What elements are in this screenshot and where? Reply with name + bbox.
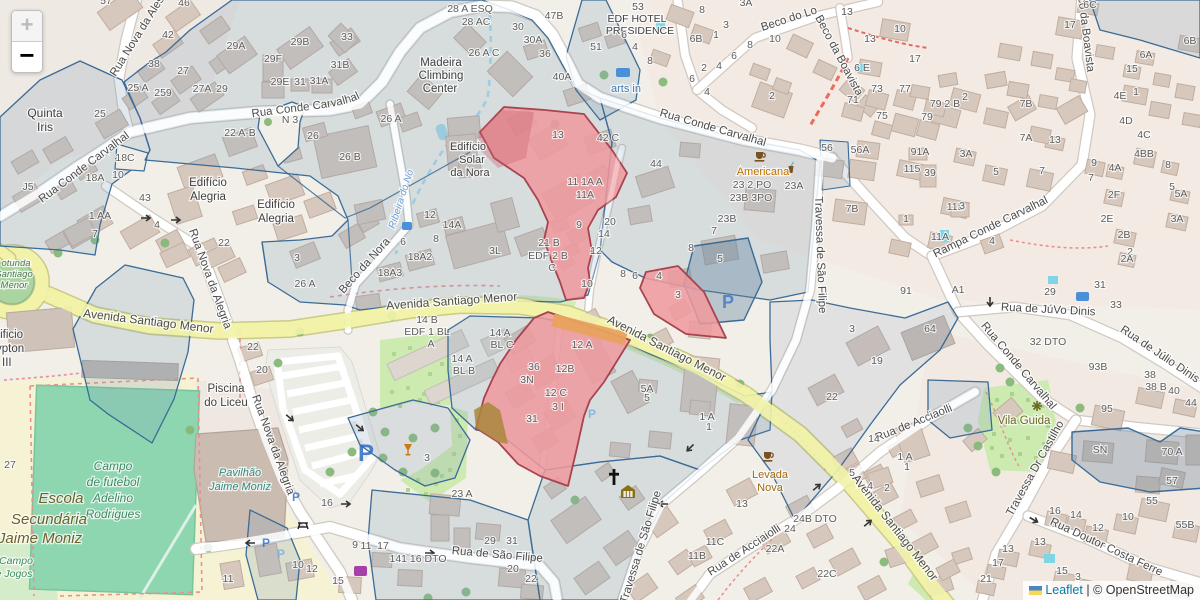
svg-text:6: 6 (632, 270, 638, 282)
svg-text:7B: 7B (1020, 98, 1033, 110)
svg-text:Campo: Campo (94, 459, 133, 473)
svg-text:EDF 2 B: EDF 2 B (528, 250, 568, 262)
svg-text:Secundária: Secundária (11, 511, 87, 528)
svg-text:P: P (358, 440, 374, 467)
svg-text:Climbing: Climbing (419, 70, 464, 82)
svg-text:1: 1 (1133, 86, 1139, 98)
svg-text:Alegria: Alegria (190, 191, 226, 203)
svg-text:32 DTO: 32 DTO (1030, 336, 1067, 348)
svg-text:Center: Center (423, 83, 458, 95)
svg-text:8: 8 (699, 4, 705, 16)
svg-text:17: 17 (992, 557, 1004, 569)
svg-text:15: 15 (1056, 565, 1068, 577)
svg-text:29: 29 (216, 83, 228, 95)
svg-text:23A: 23A (785, 180, 804, 192)
svg-text:13: 13 (1002, 543, 1014, 555)
svg-text:14 A: 14 A (451, 353, 472, 365)
svg-text:46: 46 (178, 0, 190, 9)
svg-text:24B DTO: 24B DTO (793, 513, 837, 525)
svg-text:15: 15 (1126, 63, 1138, 75)
svg-text:12: 12 (1092, 522, 1104, 534)
svg-text:1: 1 (904, 461, 910, 473)
svg-text:4A: 4A (1109, 162, 1122, 174)
svg-text:6C: 6C (1083, 0, 1097, 11)
svg-text:31B: 31B (331, 59, 350, 71)
svg-text:14: 14 (868, 433, 880, 445)
svg-text:N 3: N 3 (282, 114, 299, 126)
svg-text:29A: 29A (227, 40, 246, 52)
svg-text:Edifício: Edifício (450, 141, 486, 153)
svg-text:6: 6 (731, 50, 737, 62)
svg-text:2E: 2E (1101, 213, 1114, 225)
svg-text:10: 10 (894, 23, 906, 35)
svg-text:22 A-B: 22 A-B (224, 127, 256, 139)
svg-text:13: 13 (841, 6, 853, 18)
svg-text:2: 2 (769, 90, 775, 102)
svg-text:38: 38 (1144, 369, 1156, 381)
svg-text:13: 13 (552, 129, 564, 141)
svg-text:22: 22 (826, 391, 838, 403)
svg-text:4: 4 (716, 60, 722, 72)
svg-text:3: 3 (294, 252, 300, 264)
svg-text:93B: 93B (1089, 361, 1108, 373)
svg-text:36: 36 (528, 361, 540, 373)
svg-text:16: 16 (1049, 505, 1061, 517)
svg-text:12: 12 (424, 209, 436, 221)
svg-text:Jaime Moniz: Jaime Moniz (208, 481, 271, 493)
svg-text:12 C: 12 C (545, 387, 568, 399)
svg-text:A1: A1 (952, 284, 965, 296)
svg-text:29: 29 (484, 535, 496, 547)
svg-text:26 A C: 26 A C (469, 47, 500, 59)
svg-text:Campo: Campo (0, 555, 33, 567)
svg-text:Rodrigues: Rodrigues (86, 507, 141, 521)
svg-text:11B: 11B (688, 550, 706, 562)
svg-text:A: A (427, 338, 434, 350)
svg-text:III: III (2, 357, 12, 369)
svg-text:43: 43 (139, 192, 151, 204)
svg-text:2A: 2A (1121, 253, 1134, 265)
svg-text:3A: 3A (1171, 213, 1184, 225)
svg-text:7A: 7A (1020, 132, 1033, 144)
svg-text:Solar: Solar (459, 154, 485, 166)
svg-text:Edifício: Edifício (257, 199, 295, 211)
svg-text:5: 5 (717, 253, 723, 265)
svg-text:4: 4 (989, 235, 995, 247)
svg-text:3: 3 (959, 200, 965, 212)
svg-text:23B 3PO: 23B 3PO (730, 192, 773, 204)
svg-text:8: 8 (1165, 159, 1171, 171)
svg-text:Quinta: Quinta (27, 106, 63, 120)
svg-text:79 2 B: 79 2 B (930, 98, 960, 110)
svg-text:11A: 11A (931, 231, 949, 243)
svg-text:3: 3 (849, 323, 855, 335)
svg-text:BL C: BL C (491, 339, 514, 351)
svg-text:40A: 40A (553, 71, 572, 83)
svg-text:10: 10 (1122, 511, 1134, 523)
svg-text:22C: 22C (817, 568, 837, 580)
svg-text:31: 31 (294, 76, 306, 88)
svg-text:Pavilhão: Pavilhão (219, 467, 261, 479)
svg-text:77: 77 (899, 83, 911, 95)
svg-text:4: 4 (867, 480, 873, 492)
svg-text:39: 39 (924, 167, 936, 179)
svg-text:23 2 PO: 23 2 PO (733, 179, 772, 191)
svg-text:Edificio: Edificio (0, 329, 23, 341)
svg-text:Levada: Levada (752, 469, 789, 481)
svg-text:31A: 31A (310, 75, 329, 87)
svg-text:Americana: Americana (737, 166, 790, 178)
svg-text:14: 14 (598, 228, 610, 240)
svg-text:20: 20 (604, 216, 616, 228)
svg-text:3: 3 (723, 19, 729, 31)
svg-text:71: 71 (847, 94, 859, 106)
svg-text:18C: 18C (115, 152, 135, 164)
svg-text:28 AC: 28 AC (462, 16, 491, 28)
svg-text:2: 2 (701, 62, 707, 74)
svg-text:47B: 47B (545, 10, 564, 22)
svg-text:Menor: Menor (1, 280, 29, 291)
svg-text:4BB: 4BB (1134, 148, 1154, 160)
svg-text:7B: 7B (846, 203, 859, 215)
svg-text:27A: 27A (193, 83, 212, 95)
svg-text:Vila Guida: Vila Guida (998, 415, 1051, 427)
svg-text:PRESIDENCE: PRESIDENCE (606, 25, 674, 37)
svg-text:9: 9 (576, 219, 582, 231)
svg-text:14: 14 (1070, 509, 1082, 521)
svg-text:18A: 18A (86, 172, 105, 184)
svg-text:14A: 14A (443, 219, 462, 231)
svg-text:P: P (588, 407, 596, 421)
svg-text:29F: 29F (264, 53, 282, 65)
svg-text:4E: 4E (1114, 90, 1127, 102)
svg-text:33: 33 (1110, 299, 1122, 311)
svg-text:25 A: 25 A (127, 82, 148, 94)
svg-text:15: 15 (332, 575, 344, 587)
svg-text:25: 25 (94, 108, 106, 120)
svg-text:P: P (262, 536, 270, 550)
svg-text:22: 22 (525, 573, 537, 585)
svg-text:70 A: 70 A (1161, 446, 1182, 458)
svg-text:53: 53 (632, 1, 644, 13)
svg-text:95: 95 (1101, 403, 1113, 415)
svg-text:17: 17 (377, 540, 389, 552)
svg-text:29E: 29E (271, 76, 290, 88)
svg-text:1 AA: 1 AA (89, 210, 111, 222)
svg-text:10: 10 (112, 169, 124, 181)
svg-text:Santiago: Santiago (0, 269, 33, 280)
svg-text:17: 17 (1064, 19, 1076, 31)
svg-text:13: 13 (1049, 134, 1061, 146)
svg-text:6B: 6B (1184, 35, 1197, 47)
svg-text:7: 7 (1039, 165, 1045, 177)
svg-text:ypton: ypton (0, 343, 24, 355)
svg-text:33: 33 (341, 31, 353, 43)
svg-text:da Nora: da Nora (450, 167, 490, 179)
svg-text:11: 11 (223, 573, 234, 585)
svg-text:12B: 12B (556, 363, 575, 375)
svg-text:SN: SN (1093, 444, 1108, 456)
svg-text:1: 1 (903, 213, 909, 225)
svg-text:42: 42 (162, 29, 174, 41)
svg-text:40: 40 (1168, 385, 1180, 397)
svg-text:11 1A A: 11 1A A (567, 176, 602, 188)
svg-text:Edifício: Edifício (189, 177, 227, 189)
svg-text:8: 8 (620, 268, 626, 280)
svg-text:79: 79 (921, 111, 933, 123)
svg-text:BL B: BL B (453, 365, 475, 377)
svg-text:4: 4 (632, 41, 638, 53)
svg-text:26 A: 26 A (380, 113, 401, 125)
svg-text:9: 9 (1091, 157, 1097, 169)
svg-text:31: 31 (526, 413, 538, 425)
svg-text:56A: 56A (851, 144, 870, 156)
svg-text:e Jogos: e Jogos (0, 568, 33, 580)
svg-text:31: 31 (1094, 279, 1106, 291)
svg-text:3N: 3N (520, 374, 533, 386)
svg-text:57: 57 (1166, 475, 1178, 487)
svg-text:44: 44 (650, 158, 662, 170)
svg-text:51: 51 (590, 41, 602, 53)
svg-text:5: 5 (849, 467, 855, 479)
svg-text:P: P (277, 547, 285, 561)
svg-text:11C: 11C (706, 536, 725, 548)
svg-text:20: 20 (507, 563, 519, 575)
svg-text:2F: 2F (1108, 189, 1120, 201)
svg-text:23 A: 23 A (451, 488, 472, 500)
svg-text:27: 27 (4, 459, 16, 471)
svg-text:do Liceu: do Liceu (204, 397, 247, 409)
svg-text:arts in: arts in (611, 83, 641, 95)
svg-text:Piscina: Piscina (207, 383, 245, 395)
svg-text:8: 8 (647, 55, 653, 67)
svg-text:6B: 6B (690, 33, 703, 45)
svg-text:6: 6 (689, 73, 695, 85)
svg-text:7: 7 (711, 225, 717, 237)
svg-text:29: 29 (1044, 286, 1056, 298)
svg-text:9: 9 (352, 539, 358, 551)
svg-text:Nova: Nova (757, 482, 784, 494)
svg-text:14 B: 14 B (416, 314, 438, 326)
svg-text:4: 4 (704, 86, 710, 98)
svg-text:20: 20 (256, 364, 268, 376)
svg-text:6: 6 (621, 29, 627, 41)
svg-text:13: 13 (864, 33, 876, 45)
svg-text:2: 2 (884, 482, 890, 494)
svg-text:22: 22 (218, 237, 230, 249)
svg-text:64: 64 (924, 323, 936, 335)
svg-text:24: 24 (784, 523, 796, 535)
svg-text:3A: 3A (960, 148, 973, 160)
svg-text:1: 1 (706, 421, 712, 433)
svg-text:30: 30 (512, 21, 524, 33)
svg-text:8: 8 (433, 233, 439, 245)
svg-text:75: 75 (876, 110, 888, 122)
svg-text:11: 11 (361, 540, 372, 552)
svg-text:otunda: otunda (1, 258, 30, 269)
svg-text:de futebol: de futebol (87, 475, 140, 489)
svg-text:4C: 4C (1137, 129, 1151, 141)
svg-text:P: P (722, 292, 734, 312)
svg-text:23B: 23B (718, 213, 737, 225)
svg-text:3A: 3A (740, 0, 753, 9)
svg-text:2B: 2B (1118, 229, 1131, 241)
svg-text:10: 10 (292, 559, 304, 571)
svg-text:1: 1 (713, 29, 719, 41)
svg-text:Escola: Escola (38, 490, 83, 507)
svg-text:17: 17 (909, 53, 921, 65)
svg-text:73: 73 (871, 83, 883, 95)
svg-text:29B: 29B (291, 36, 310, 48)
svg-text:C: C (548, 262, 556, 274)
svg-text:5A: 5A (1175, 188, 1188, 200)
svg-text:J5: J5 (22, 181, 33, 193)
svg-text:3: 3 (675, 289, 681, 301)
svg-text:12: 12 (306, 563, 318, 575)
svg-text:91: 91 (900, 285, 912, 297)
svg-text:14 A: 14 A (489, 327, 510, 339)
svg-text:5: 5 (644, 392, 650, 404)
svg-text:91A: 91A (911, 146, 930, 158)
svg-text:56: 56 (821, 142, 833, 154)
svg-text:27: 27 (177, 65, 189, 77)
svg-text:7: 7 (1088, 172, 1094, 184)
svg-text:Iris: Iris (37, 120, 53, 134)
svg-text:3 I: 3 I (552, 401, 564, 413)
svg-text:8: 8 (747, 39, 753, 51)
svg-text:Madeira: Madeira (420, 57, 462, 69)
svg-text:4: 4 (154, 219, 160, 231)
svg-text:10: 10 (581, 278, 593, 290)
svg-text:26 A: 26 A (294, 278, 315, 290)
svg-text:28 A ESQ: 28 A ESQ (447, 3, 493, 15)
svg-text:EDF 1 BL: EDF 1 BL (404, 326, 450, 338)
svg-text:12: 12 (590, 245, 602, 257)
svg-text:31: 31 (506, 535, 518, 547)
svg-text:7: 7 (92, 228, 98, 240)
svg-text:13: 13 (1034, 536, 1046, 548)
svg-text:22A: 22A (766, 543, 785, 555)
svg-text:12 A: 12 A (571, 339, 592, 351)
svg-text:55: 55 (1146, 495, 1158, 507)
svg-text:26 B: 26 B (339, 151, 361, 163)
svg-text:141 16 DTO: 141 16 DTO (389, 553, 446, 565)
svg-text:EDF HOTEL: EDF HOTEL (608, 13, 667, 25)
svg-text:57: 57 (100, 0, 112, 7)
svg-text:115: 115 (904, 163, 921, 175)
svg-text:55B: 55B (1176, 519, 1195, 531)
svg-text:11A: 11A (576, 189, 594, 201)
svg-text:18A2: 18A2 (408, 251, 433, 263)
svg-text:4D: 4D (1119, 115, 1133, 127)
svg-text:13: 13 (736, 498, 748, 510)
svg-text:2: 2 (962, 91, 968, 103)
svg-text:18A3: 18A3 (378, 267, 403, 279)
svg-text:6 E: 6 E (854, 62, 870, 74)
svg-text:259: 259 (154, 87, 172, 99)
svg-text:38: 38 (148, 58, 160, 70)
svg-text:21: 21 (980, 573, 992, 585)
svg-text:4: 4 (656, 270, 662, 282)
svg-text:44: 44 (1185, 397, 1197, 409)
svg-text:8: 8 (688, 242, 694, 254)
svg-text:6A: 6A (1140, 49, 1153, 61)
svg-text:22: 22 (247, 341, 259, 353)
svg-text:3: 3 (424, 452, 430, 464)
svg-text:19: 19 (871, 355, 883, 367)
svg-text:38 B: 38 B (1145, 381, 1167, 393)
svg-text:Adelino: Adelino (92, 491, 133, 505)
svg-text:26: 26 (307, 130, 319, 142)
svg-text:42 C: 42 C (597, 132, 620, 144)
svg-text:5: 5 (993, 166, 999, 178)
svg-text:36: 36 (539, 48, 551, 60)
svg-text:10: 10 (769, 33, 781, 45)
svg-text:Jaime Moniz: Jaime Moniz (0, 530, 83, 547)
svg-text:6: 6 (400, 236, 406, 248)
svg-text:Alegria: Alegria (258, 213, 294, 225)
svg-text:3L: 3L (489, 245, 501, 257)
svg-text:21 B: 21 B (538, 237, 560, 249)
svg-text:30A: 30A (524, 34, 543, 46)
svg-text:16: 16 (321, 497, 333, 509)
